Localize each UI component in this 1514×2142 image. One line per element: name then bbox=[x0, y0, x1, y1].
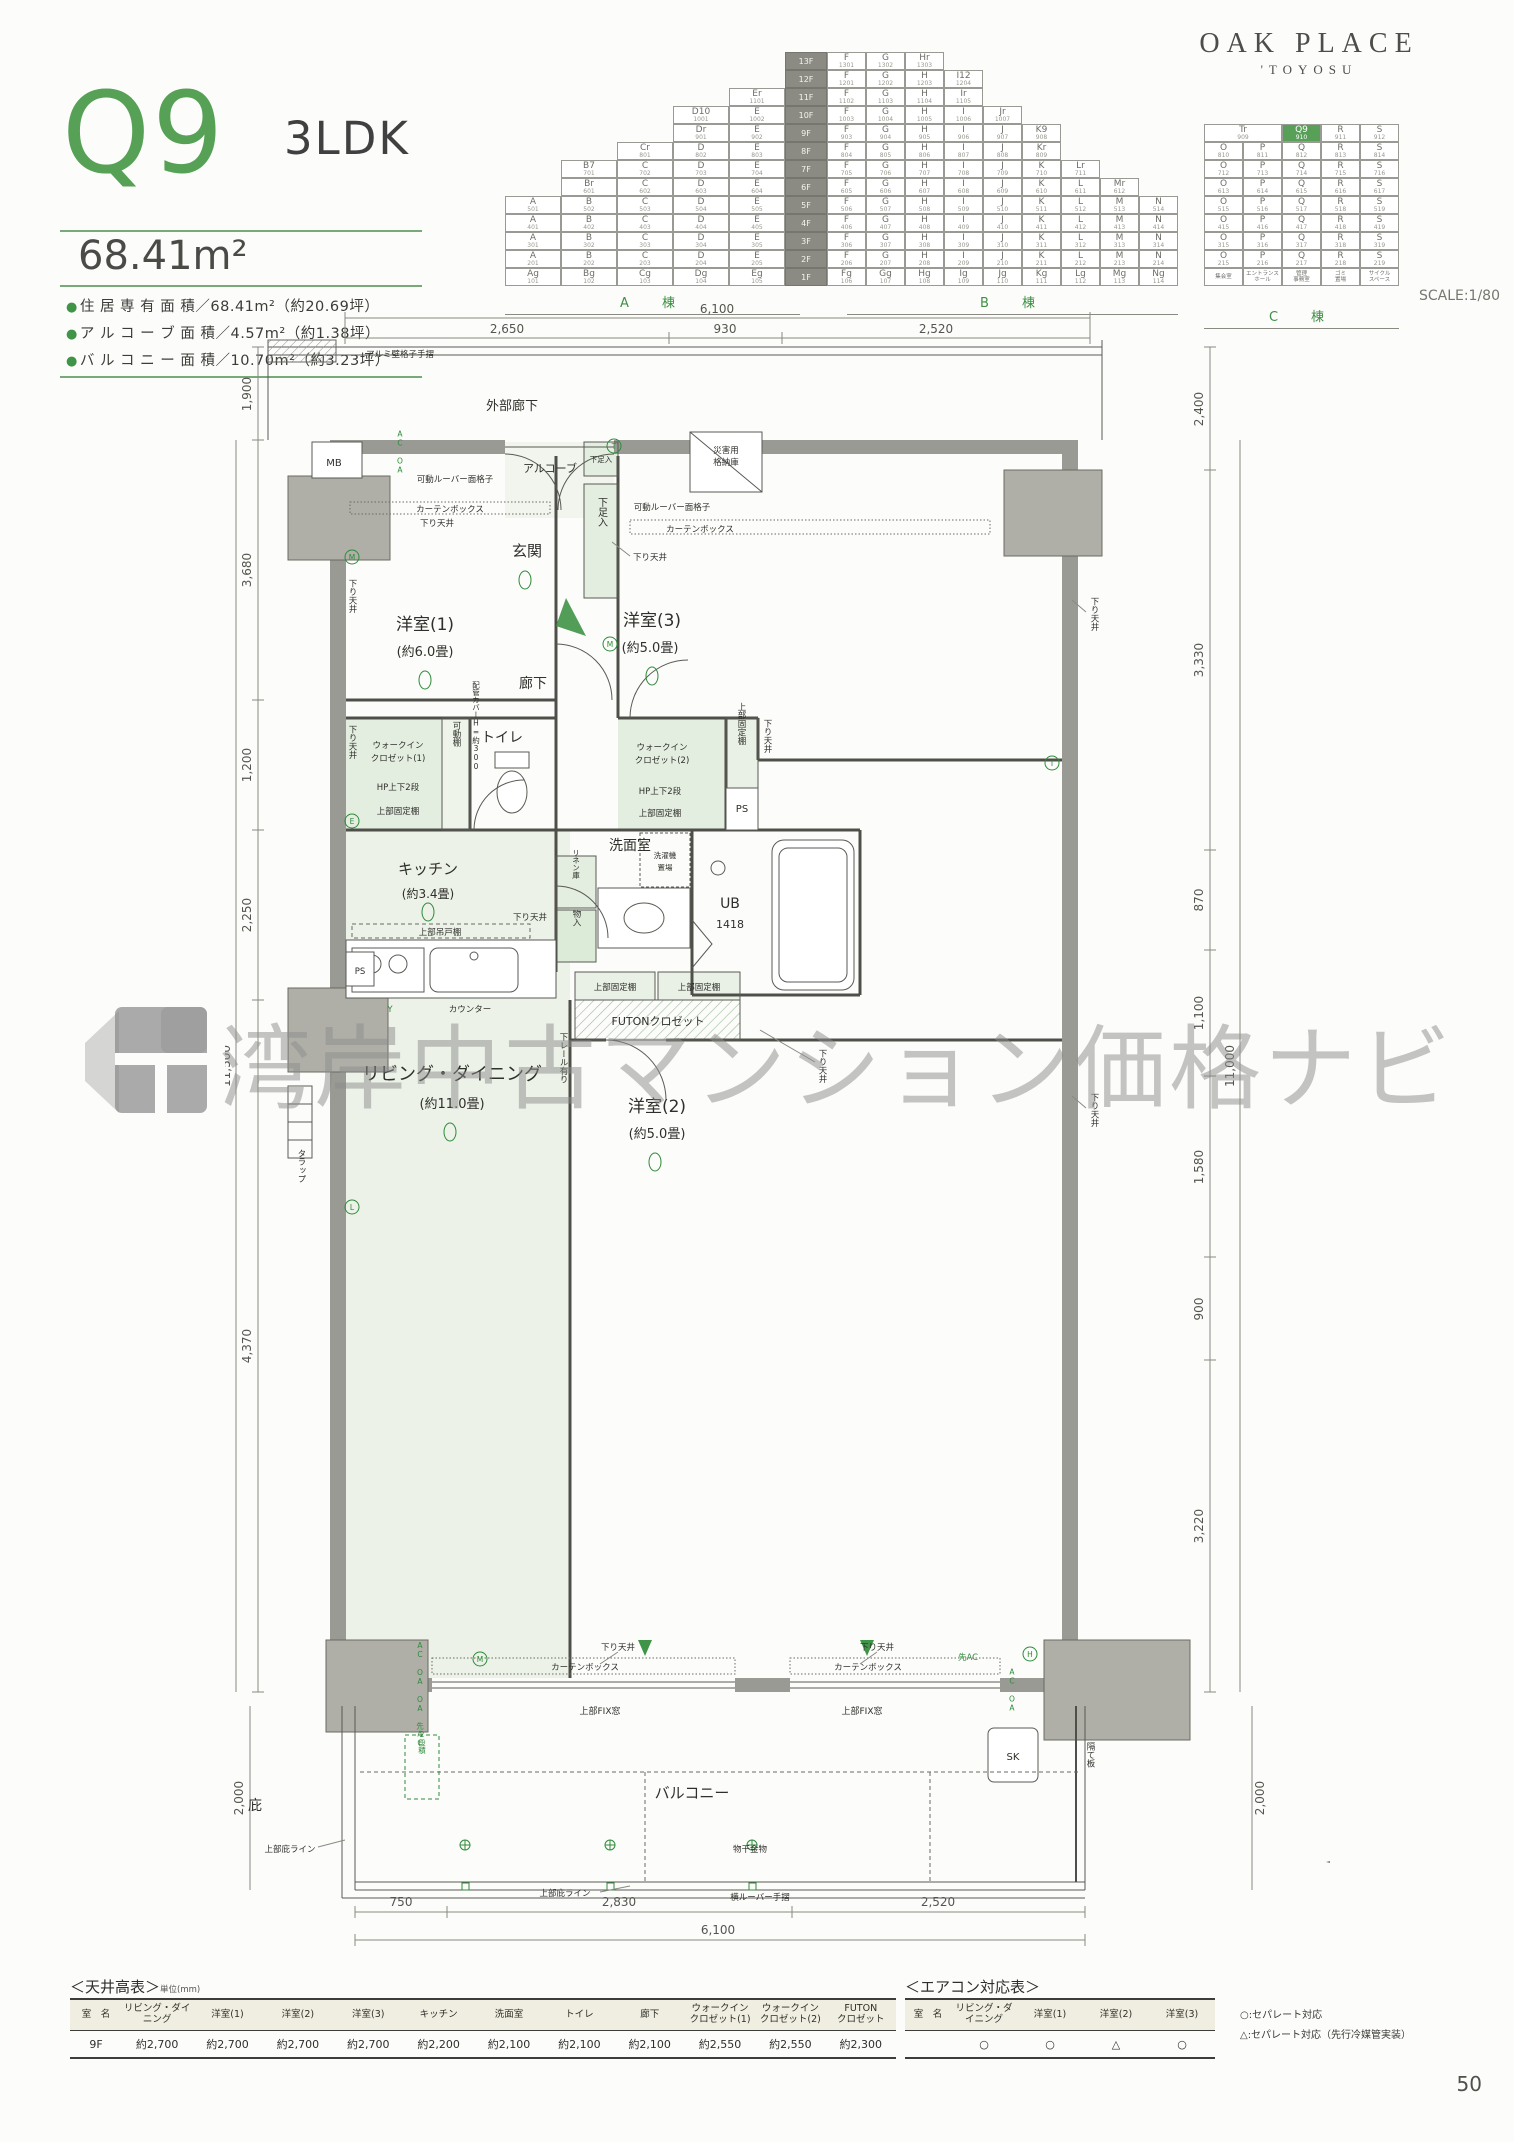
unit-cell: A301 bbox=[505, 232, 561, 250]
unit-cell: G805 bbox=[866, 142, 905, 160]
unit-cell: Kr809 bbox=[1022, 142, 1061, 160]
unit-cell: B202 bbox=[561, 250, 617, 268]
aircon-title-text: ＜エアコン対応表＞ bbox=[905, 1978, 1040, 1996]
pillar bbox=[1004, 470, 1102, 556]
unit-cell: F903 bbox=[827, 124, 866, 142]
unit-cell: C203 bbox=[617, 250, 673, 268]
label-railing: アルミ壁格子手摺 bbox=[366, 349, 434, 360]
value-cell: 約2,550 bbox=[755, 2031, 825, 2059]
unit-cell: I906 bbox=[944, 124, 983, 142]
unit-cell: Ng114 bbox=[1139, 268, 1178, 286]
mark-t: T bbox=[611, 442, 617, 451]
row-label: 9F bbox=[70, 2031, 122, 2059]
unit-cell: G1103 bbox=[866, 88, 905, 106]
dim-bottom-2: 2,520 bbox=[921, 1895, 955, 1909]
label-ub-size: 1418 bbox=[716, 918, 744, 931]
unit-cell: B302 bbox=[561, 232, 617, 250]
unit-cell: H508 bbox=[905, 196, 944, 214]
dim-top-1: 930 bbox=[714, 322, 737, 336]
unit-cell: S716 bbox=[1360, 160, 1399, 178]
label-hanging-cupboard: 上部吊戸棚 bbox=[419, 927, 462, 938]
label-linen: リネン庫 bbox=[571, 849, 580, 880]
label-curtain-box: カーテンボックス bbox=[834, 1663, 902, 1673]
mark-m: M bbox=[477, 1655, 483, 1664]
col-header: FUTON クロゼット bbox=[826, 1999, 896, 2031]
unit-cell: Br601 bbox=[561, 178, 617, 196]
label-lowered-ceiling: 下り天井 bbox=[633, 552, 667, 563]
value-cell: ○ bbox=[951, 2031, 1017, 2059]
watermark-logo-icon bbox=[85, 1005, 207, 1119]
unit-cell: H806 bbox=[905, 142, 944, 160]
label-ac-oa: AC OA bbox=[1008, 1668, 1017, 1713]
dim-right-total: 11,000 bbox=[1223, 1045, 1237, 1087]
unit-cell: R518 bbox=[1321, 196, 1360, 214]
unit-cell: F1003 bbox=[827, 106, 866, 124]
unit-area: 68.41m² bbox=[78, 233, 248, 279]
floor-label: 8F bbox=[785, 142, 827, 160]
ceiling-title-text: ＜天井高表＞ bbox=[70, 1978, 160, 1996]
dim-left-2: 1,200 bbox=[240, 748, 254, 782]
unit-cell: R715 bbox=[1321, 160, 1360, 178]
aircon-table: 室 名リビング・ダイニング洋室(1)洋室(2)洋室(3) ○○△○ bbox=[905, 1998, 1215, 2059]
unit-cell: サイクル スペース bbox=[1360, 268, 1399, 286]
unit-cell: H1203 bbox=[905, 70, 944, 88]
unit-cell: Q217 bbox=[1282, 250, 1321, 268]
door-arc bbox=[556, 644, 612, 700]
value-cell: 約2,550 bbox=[685, 2031, 755, 2059]
unit-cell: I608 bbox=[944, 178, 983, 196]
dim-right-2: 870 bbox=[1192, 889, 1206, 912]
label-curtain-box: カーテンボックス bbox=[416, 505, 484, 515]
pillar bbox=[288, 476, 390, 560]
label-bottom-rail: 下レール有り bbox=[558, 1033, 568, 1084]
unit-cell: Q812 bbox=[1282, 142, 1321, 160]
ceiling-height-table: 室 名リビング・ダイニング洋室(1)洋室(2)洋室(3)キッチン洗面室トイレ廊下… bbox=[70, 1998, 896, 2059]
label-toilet: トイレ bbox=[481, 730, 523, 746]
label-kitchen: キッチン bbox=[398, 860, 458, 878]
label-wic2-2: クロゼット(2) bbox=[635, 755, 690, 766]
unit-cell: G507 bbox=[866, 196, 905, 214]
unit-cell: S617 bbox=[1360, 178, 1399, 196]
unit-cell: Dg104 bbox=[673, 268, 729, 286]
unit-cell: L212 bbox=[1061, 250, 1100, 268]
unit-cell: G307 bbox=[866, 232, 905, 250]
label-shoe-cabinet: 下足入 bbox=[596, 497, 608, 527]
mark-h: H bbox=[1027, 1650, 1033, 1659]
unit-cell: F406 bbox=[827, 214, 866, 232]
aircon-header-row: 室 名リビング・ダイニング洋室(1)洋室(2)洋室(3) bbox=[905, 1999, 1215, 2031]
unit-cell: Q517 bbox=[1282, 196, 1321, 214]
unit-cell: I121204 bbox=[944, 70, 983, 88]
unit-cell: S319 bbox=[1360, 232, 1399, 250]
unit-cell: P316 bbox=[1243, 232, 1282, 250]
label-disaster-1: 災害用 bbox=[713, 445, 739, 456]
unit-cell: P216 bbox=[1243, 250, 1282, 268]
row-label bbox=[905, 2031, 951, 2059]
unit-cell: K211 bbox=[1022, 250, 1061, 268]
label-bedroom2: 洋室(2) bbox=[628, 1097, 686, 1117]
curtain-marker bbox=[638, 1640, 652, 1656]
unit-cell: E505 bbox=[729, 196, 785, 214]
floorplan-page: Q9 3LDK 68.41m² 住 居 専 有 面 積／68.41m²（約20.… bbox=[0, 0, 1514, 2142]
label-kitchen-size: (約3.4畳) bbox=[402, 886, 454, 901]
unit-cell: Q714 bbox=[1282, 160, 1321, 178]
label-bedroom3-size: (約5.0畳) bbox=[622, 641, 679, 656]
col-header: 洗面室 bbox=[474, 1999, 544, 2031]
scale-note: SCALE:1/80 bbox=[1356, 288, 1500, 304]
label-bedroom1: 洋室(1) bbox=[396, 615, 454, 635]
value-cell: 約2,100 bbox=[474, 2031, 544, 2059]
col-header: 洋室(1) bbox=[1017, 1999, 1083, 2031]
unit-cell: D603 bbox=[673, 178, 729, 196]
green-rule bbox=[60, 285, 422, 287]
unit-cell: S219 bbox=[1360, 250, 1399, 268]
label-lowered-ceiling: 下り天井 bbox=[762, 719, 772, 754]
unit-cell: G904 bbox=[866, 124, 905, 142]
unit-cell: O613 bbox=[1204, 178, 1243, 196]
col-header: トイレ bbox=[544, 1999, 614, 2031]
unit-cell: E305 bbox=[729, 232, 785, 250]
label-fixed-shelf: 上部固定棚 bbox=[736, 703, 746, 746]
dim-left-0: 1,900 bbox=[240, 377, 254, 411]
unit-cell: Fg106 bbox=[827, 268, 866, 286]
compass-icon: N bbox=[1326, 1820, 1330, 1960]
page-number: 50 bbox=[1412, 2072, 1482, 2096]
unit-cell: Mg113 bbox=[1100, 268, 1139, 286]
unit-cell: F1102 bbox=[827, 88, 866, 106]
label-washroom: 洗面室 bbox=[609, 837, 651, 854]
col-header: 洋室(1) bbox=[192, 1999, 262, 2031]
label-lowered-ceiling: 下り天井 bbox=[420, 518, 454, 529]
label-fixed-shelf: 上部固定棚 bbox=[678, 982, 721, 993]
unit-cell: Ag101 bbox=[505, 268, 561, 286]
unit-cell: K710 bbox=[1022, 160, 1061, 178]
label-outer-corridor: 外部廊下 bbox=[486, 398, 538, 414]
unit-id: Q9 bbox=[62, 78, 225, 190]
dim-left-total: 11,500 bbox=[225, 1045, 233, 1087]
door-arc bbox=[630, 660, 688, 718]
value-cell: 約2,200 bbox=[403, 2031, 473, 2059]
unit-cell: Cr801 bbox=[617, 142, 673, 160]
shower-head bbox=[711, 861, 725, 875]
unit-cell: Q615 bbox=[1282, 178, 1321, 196]
label-lowered-ceiling: 下り天井 bbox=[347, 725, 357, 760]
label-curtain-box: カーテンボックス bbox=[551, 1663, 619, 1673]
floor-label: 9F bbox=[785, 124, 827, 142]
unit-cell: E704 bbox=[729, 160, 785, 178]
unit-cell: R616 bbox=[1321, 178, 1360, 196]
unit-cell: M513 bbox=[1100, 196, 1139, 214]
value-cell: 約2,700 bbox=[263, 2031, 333, 2059]
unit-cell: I309 bbox=[944, 232, 983, 250]
label-lowered-ceiling: 下り天井 bbox=[347, 579, 357, 614]
unit-cell: D204 bbox=[673, 250, 729, 268]
floor-label: 5F bbox=[785, 196, 827, 214]
unit-cell: Q417 bbox=[1282, 214, 1321, 232]
label-lowered-ceiling: 下り天井 bbox=[817, 1049, 827, 1084]
unit-cell: K610 bbox=[1022, 178, 1061, 196]
col-header: 洋室(2) bbox=[1083, 1999, 1149, 2031]
label-bedroom1-size: (約6.0畳) bbox=[397, 645, 454, 660]
dim-top-total: 6,100 bbox=[700, 302, 734, 316]
label-slop-sink: SK bbox=[1007, 1752, 1020, 1763]
unit-cell: S814 bbox=[1360, 142, 1399, 160]
unit-cell: Lg112 bbox=[1061, 268, 1100, 286]
unit-cell: P416 bbox=[1243, 214, 1282, 232]
dim-top-0: 2,650 bbox=[490, 322, 524, 336]
unit-cell: D504 bbox=[673, 196, 729, 214]
unit-cell: N314 bbox=[1139, 232, 1178, 250]
unit-cell: N514 bbox=[1139, 196, 1178, 214]
label-counter: カウンター bbox=[449, 1005, 492, 1015]
bath-door bbox=[692, 920, 712, 968]
unit-cell: F506 bbox=[827, 196, 866, 214]
unit-cell: Ig109 bbox=[944, 268, 983, 286]
unit-cell: Cg103 bbox=[617, 268, 673, 286]
unit-cell: H208 bbox=[905, 250, 944, 268]
unit-cell: R318 bbox=[1321, 232, 1360, 250]
unit-cell: D703 bbox=[673, 160, 729, 178]
unit-cell: I409 bbox=[944, 214, 983, 232]
col-header: ウォークイン クロゼット(2) bbox=[755, 1999, 825, 2031]
label-louver: 可動ルーバー面格子 bbox=[634, 502, 711, 513]
label-living-dining-size: (約11.0畳) bbox=[419, 1097, 484, 1112]
floor-label: 13F bbox=[785, 52, 827, 70]
mark-m: M bbox=[607, 640, 613, 649]
unit-cell: G1202 bbox=[866, 70, 905, 88]
kitchen-counter bbox=[346, 940, 556, 998]
vanity-counter bbox=[598, 888, 690, 948]
label-fix-window: 上部FIX窓 bbox=[842, 1705, 883, 1717]
label-wic1-hp: HP上下2段 bbox=[377, 782, 420, 793]
unit-cell: H308 bbox=[905, 232, 944, 250]
unit-cell: エントランス ホール bbox=[1243, 268, 1282, 286]
label-wic1-2: クロゼット(1) bbox=[371, 753, 426, 764]
value-cell: ○ bbox=[1017, 2031, 1083, 2059]
floor-label: 2F bbox=[785, 250, 827, 268]
unit-cell: R218 bbox=[1321, 250, 1360, 268]
floor-label: 11F bbox=[785, 88, 827, 106]
col-header: 洋室(3) bbox=[1149, 1999, 1215, 2031]
dim-right-3: 1,100 bbox=[1192, 996, 1206, 1030]
unit-cell: F705 bbox=[827, 160, 866, 178]
unit-cell: I209 bbox=[944, 250, 983, 268]
label-lowered-ceiling: 下り天井 bbox=[860, 1642, 894, 1653]
green-rule bbox=[60, 230, 422, 232]
balcony-area bbox=[318, 1706, 1085, 1898]
unit-cell: B502 bbox=[561, 196, 617, 214]
dim-right-6: 3,220 bbox=[1192, 1509, 1206, 1543]
unit-cell: O712 bbox=[1204, 160, 1243, 178]
unit-cell: J709 bbox=[983, 160, 1022, 178]
label-fix-window: 上部FIX窓 bbox=[580, 1705, 621, 1717]
label-wic2-hp: HP上下2段 bbox=[639, 786, 682, 797]
unit-cell: J808 bbox=[983, 142, 1022, 160]
label-bedroom2-size: (約5.0畳) bbox=[629, 1127, 686, 1142]
unit-cell: A401 bbox=[505, 214, 561, 232]
unit-cell: G706 bbox=[866, 160, 905, 178]
label-lowered-ceiling: 下り天井 bbox=[601, 1642, 635, 1653]
dim-bottom-0: 750 bbox=[390, 1895, 413, 1909]
unit-cell: I708 bbox=[944, 160, 983, 178]
unit-cell: D304 bbox=[673, 232, 729, 250]
unit-cell: G1004 bbox=[866, 106, 905, 124]
unit-cell: C303 bbox=[617, 232, 673, 250]
unit-cell: M313 bbox=[1100, 232, 1139, 250]
unit-cell-current: Q9910 bbox=[1282, 124, 1321, 142]
label-ac-prewired: 先AC bbox=[958, 1652, 978, 1663]
dim-bottom-1: 2,830 bbox=[602, 1895, 636, 1909]
mark-e: E bbox=[350, 817, 355, 826]
unit-cell: Jr1007 bbox=[983, 106, 1022, 124]
label-ps: PS bbox=[736, 804, 748, 815]
label-washer-2: 置場 bbox=[658, 862, 673, 872]
floor-label: 6F bbox=[785, 178, 827, 196]
unit-cell: Lr711 bbox=[1061, 160, 1100, 178]
unit-cell: S519 bbox=[1360, 196, 1399, 214]
value-cell: △ bbox=[1083, 2031, 1149, 2059]
label-curtain-box: カーテンボックス bbox=[666, 525, 734, 535]
label-louver: 可動ルーバー面格子 bbox=[417, 474, 494, 485]
unit-cell: P811 bbox=[1243, 142, 1282, 160]
unit-cell: J210 bbox=[983, 250, 1022, 268]
dim-left-1: 3,680 bbox=[240, 553, 254, 587]
toilet-bowl bbox=[497, 771, 527, 813]
unit-cell: H408 bbox=[905, 214, 944, 232]
label-partition: 隔て板 bbox=[1085, 1742, 1095, 1768]
value-cell: 約2,700 bbox=[122, 2031, 192, 2059]
unit-cell: E803 bbox=[729, 142, 785, 160]
pillar bbox=[288, 988, 388, 1072]
label-eaves-line: 上部庇ライン bbox=[539, 1888, 590, 1899]
label-wic1-1: ウォークイン bbox=[372, 741, 423, 751]
unit-cell: Er1101 bbox=[729, 88, 785, 106]
col-header: キッチン bbox=[403, 1999, 473, 2031]
legend-separate-prewired: △:セパレート対応（先行冷媒管実装） bbox=[1240, 2026, 1411, 2046]
unit-cell: I509 bbox=[944, 196, 983, 214]
unit-cell: P614 bbox=[1243, 178, 1282, 196]
dim-left-balcony: 2,000 bbox=[232, 1781, 246, 1815]
unit-cell: O515 bbox=[1204, 196, 1243, 214]
label-wic2-1: ウォークイン bbox=[636, 743, 687, 753]
unit-cell: A501 bbox=[505, 196, 561, 214]
unit-cell: L412 bbox=[1061, 214, 1100, 232]
pillar bbox=[326, 1640, 428, 1732]
unit-cell: B7701 bbox=[561, 160, 617, 178]
floor-label: 7F bbox=[785, 160, 827, 178]
label-eaves-line: 上部庇ライン bbox=[264, 1844, 315, 1855]
label-lowered-ceiling: 下り天井 bbox=[1089, 597, 1099, 632]
unit-cell: E604 bbox=[729, 178, 785, 196]
dim-left-4: 4,370 bbox=[240, 1329, 254, 1363]
unit-cell: ゴミ 置場 bbox=[1321, 268, 1360, 286]
value-cell: 約2,100 bbox=[615, 2031, 685, 2059]
unit-cell: F306 bbox=[827, 232, 866, 250]
unit-cell: M213 bbox=[1100, 250, 1139, 268]
bathtub bbox=[772, 840, 854, 990]
door-arc bbox=[606, 1040, 666, 1100]
value-cell: ○ bbox=[1149, 2031, 1215, 2059]
label-entrance: 玄関 bbox=[512, 542, 542, 560]
unit-cell: Q317 bbox=[1282, 232, 1321, 250]
col-header: 室 名 bbox=[905, 1999, 951, 2031]
door-marker bbox=[556, 598, 586, 636]
unit-type: 3LDK bbox=[284, 112, 410, 165]
unit-cell: I1006 bbox=[944, 106, 983, 124]
floor-label: 4F bbox=[785, 214, 827, 232]
unit-cell: E205 bbox=[729, 250, 785, 268]
dim-right-4: 1,580 bbox=[1192, 1150, 1206, 1184]
aircon-value-row: ○○△○ bbox=[905, 2031, 1215, 2059]
unit-cell: Mr612 bbox=[1100, 178, 1139, 196]
unit-cell: K511 bbox=[1022, 196, 1061, 214]
label-disaster-2: 格納庫 bbox=[713, 457, 739, 468]
mark-i: I bbox=[1051, 759, 1053, 768]
ceiling-header-row: 室 名リビング・ダイニング洋室(1)洋室(2)洋室(3)キッチン洗面室トイレ廊下… bbox=[70, 1999, 896, 2031]
col-header: 洋室(2) bbox=[263, 1999, 333, 2031]
unit-cell: G407 bbox=[866, 214, 905, 232]
label-alcove: アルコーブ bbox=[523, 461, 577, 475]
building-grid: 13FF1301G1302Hr130312FF1201G1202H1203I12… bbox=[505, 52, 1399, 286]
unit-cell: S912 bbox=[1360, 124, 1399, 142]
label-ps: PS bbox=[355, 967, 366, 977]
unit-cell: I807 bbox=[944, 142, 983, 160]
unit-cell: Gg107 bbox=[866, 268, 905, 286]
unit-cell: Ir1105 bbox=[944, 88, 983, 106]
label-louver-rail: 横ルーバー手摺 bbox=[730, 1892, 789, 1903]
label-corridor: 廊下 bbox=[519, 675, 547, 692]
ceiling-table-title: ＜天井高表＞単位(mm) bbox=[70, 1976, 200, 1997]
unit-cell: N214 bbox=[1139, 250, 1178, 268]
col-header: 洋室(3) bbox=[333, 1999, 403, 2031]
col-header: 室 名 bbox=[70, 1999, 122, 2031]
unit-cell: E405 bbox=[729, 214, 785, 232]
unit-cell: P516 bbox=[1243, 196, 1282, 214]
label-pipe-cover: 配管カバーH=約300 bbox=[471, 681, 480, 771]
unit-cell: F1201 bbox=[827, 70, 866, 88]
unit-cell: N414 bbox=[1139, 214, 1178, 232]
unit-cell: H905 bbox=[905, 124, 944, 142]
label-living-dining: リビング・ダイニング bbox=[362, 1064, 542, 1085]
label-two-stage: 2段積 bbox=[417, 1730, 426, 1755]
unit-cell: L611 bbox=[1061, 178, 1100, 196]
unit-cell: D404 bbox=[673, 214, 729, 232]
mark-m: M bbox=[349, 553, 355, 562]
unit-cell: C702 bbox=[617, 160, 673, 178]
label-lowered-ceiling: 下り天井 bbox=[1089, 1093, 1099, 1128]
unit-cell: K9908 bbox=[1022, 124, 1061, 142]
unit-cell: 集会室 bbox=[1204, 268, 1243, 286]
unit-cell: Bg102 bbox=[561, 268, 617, 286]
floor-plan: N 6,100 bbox=[225, 300, 1330, 1960]
dim-left-3: 2,250 bbox=[240, 898, 254, 932]
unit-cell: H1104 bbox=[905, 88, 944, 106]
floor-label: 1F bbox=[785, 268, 827, 286]
dim-right-balcony: 2,000 bbox=[1253, 1781, 1267, 1815]
value-cell: 約2,700 bbox=[333, 2031, 403, 2059]
aircon-table-title: ＜エアコン対応表＞ bbox=[905, 1976, 1040, 1997]
label-futon-closet: FUTONクロゼット bbox=[612, 1015, 705, 1028]
unit-cell: R813 bbox=[1321, 142, 1360, 160]
unit-cell: C403 bbox=[617, 214, 673, 232]
unit-cell: F206 bbox=[827, 250, 866, 268]
unit-cell: J410 bbox=[983, 214, 1022, 232]
unit-cell: D101001 bbox=[673, 106, 729, 124]
unit-cell: G606 bbox=[866, 178, 905, 196]
unit-cell: Dr901 bbox=[673, 124, 729, 142]
col-header: リビング・ダイニング bbox=[951, 1999, 1017, 2031]
label-laundry-fitting: 物干金物 bbox=[733, 1844, 768, 1855]
